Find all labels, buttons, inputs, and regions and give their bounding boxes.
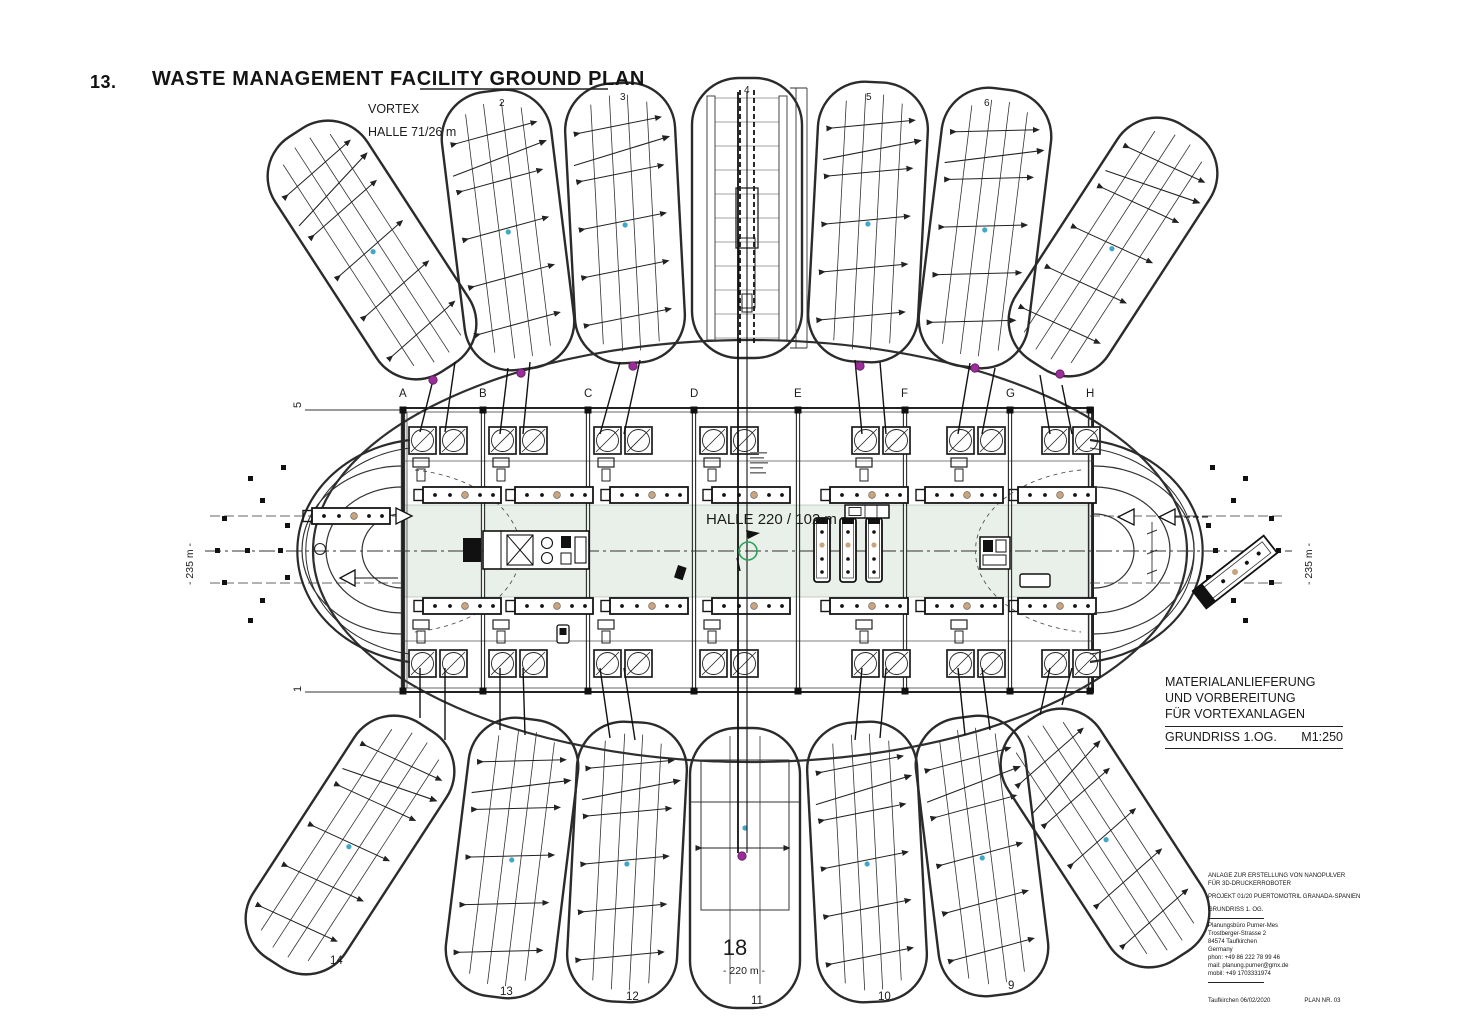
forklift (557, 625, 569, 643)
firm-mobile: mobil: +49 1703331974 (1208, 970, 1368, 978)
hall-number-3: 3 (620, 92, 626, 103)
vortex-hall (991, 100, 1236, 395)
vortex-hall (228, 698, 473, 993)
info-line1: ANLAGE ZUR ERSTELLUNG VON NANOPULVER (1208, 872, 1368, 880)
vortex-hall (913, 82, 1056, 373)
firm-country: Germany (1208, 946, 1368, 954)
info-line4: GRUNDRISS 1. OG. (1208, 906, 1368, 914)
vortex-hall (805, 719, 930, 1004)
grid-letter-a: A (399, 388, 407, 400)
firm-phone: phon: +49 86 222 78 99 46 (1208, 954, 1368, 962)
drawing-scale: M1:250 (1301, 729, 1343, 745)
title-block: MATERIALANLIEFERUNG UND VORBEREITUNG FÜR… (1165, 674, 1355, 749)
title-block-line2: UND VORBEREITUNG (1165, 690, 1355, 706)
hall-number-6: 6 (984, 98, 990, 109)
hall-number-11: 11 (751, 995, 763, 1007)
vortex-hall (806, 79, 931, 364)
info-line2: FÜR 3D-DRUCKERROBOTER (1208, 880, 1368, 888)
hall-number-10: 10 (878, 991, 891, 1003)
micro-annotation (750, 452, 768, 474)
row-label-bottom: 1 (292, 686, 304, 692)
hall-number-5: 5 (866, 92, 872, 103)
hall-number-14: 14 (330, 955, 343, 967)
hall-number-2: 2 (499, 98, 505, 109)
hall-number-4: 4 (744, 85, 750, 96)
vortex-label-line2: HALLE 71/26 m (368, 125, 456, 139)
row-label-top: 5 (292, 402, 304, 408)
dim-left: - 235 m - (184, 542, 196, 585)
grid-letter-h: H (1086, 388, 1094, 400)
firm-mail: mail: planung.purner@gmx.de (1208, 962, 1368, 970)
machine-2 (980, 537, 1010, 569)
firm-city: 84574 Taufkirchen (1208, 938, 1368, 946)
grid-letter-c: C (584, 388, 592, 400)
dim-right: - 235 m - (1303, 542, 1315, 585)
title-block-line3: FÜR VORTEXANLAGEN (1165, 706, 1355, 722)
grid-letter-e: E (794, 388, 802, 400)
dim-bottom: - 220 m - (723, 965, 766, 977)
divider (1208, 982, 1264, 983)
page-title: WASTE MANAGEMENT FACILITY GROUND PLAN (152, 68, 645, 91)
page-number: 13. (90, 72, 117, 93)
title-block-line1: MATERIALANLIEFERUNG (1165, 674, 1355, 690)
firm-name: Planungsbüro Purner-Mes (1208, 922, 1368, 930)
info-block: ANLAGE ZUR ERSTELLUNG VON NANOPULVER FÜR… (1208, 872, 1368, 1005)
drawing-name: GRUNDRISS 1.OG. (1165, 729, 1277, 745)
hall-number-9: 9 (1008, 980, 1014, 992)
grid-letter-g: G (1006, 388, 1015, 400)
vortex-hall (565, 719, 690, 1004)
firm-street: Trostberger-Strasse 2 (1208, 930, 1368, 938)
grid-letter-f: F (901, 388, 908, 400)
drawing-sheet: VORTEX HALLE 71/26 m HALLE 220 / 102 m A… (0, 0, 1462, 1033)
grid-letter-d: D (690, 388, 698, 400)
central-hall-label: HALLE 220 / 102 m (706, 511, 837, 528)
info-line3: PROJEKT 01/20 PUERTOMOTRIL GRANADA-SPANI… (1208, 893, 1368, 901)
grid-letter-b: B (479, 388, 487, 400)
vortex-label-line1: VORTEX (368, 102, 420, 116)
divider (1208, 918, 1264, 919)
center-mark-18: 18 (723, 935, 747, 960)
cart (1020, 574, 1050, 587)
hall-number-12: 12 (626, 991, 639, 1003)
vortex-hall (910, 710, 1053, 1001)
vortex-hall (436, 84, 579, 375)
plan-number: PLAN NR. 03 (1304, 997, 1340, 1005)
hall-number-13: 13 (500, 986, 513, 998)
vortex-hall (440, 712, 583, 1003)
stamp-date: Taufkirchen 06/02/2020 (1208, 997, 1270, 1005)
vortex-hall (250, 103, 495, 398)
vortex-hall (563, 80, 688, 365)
